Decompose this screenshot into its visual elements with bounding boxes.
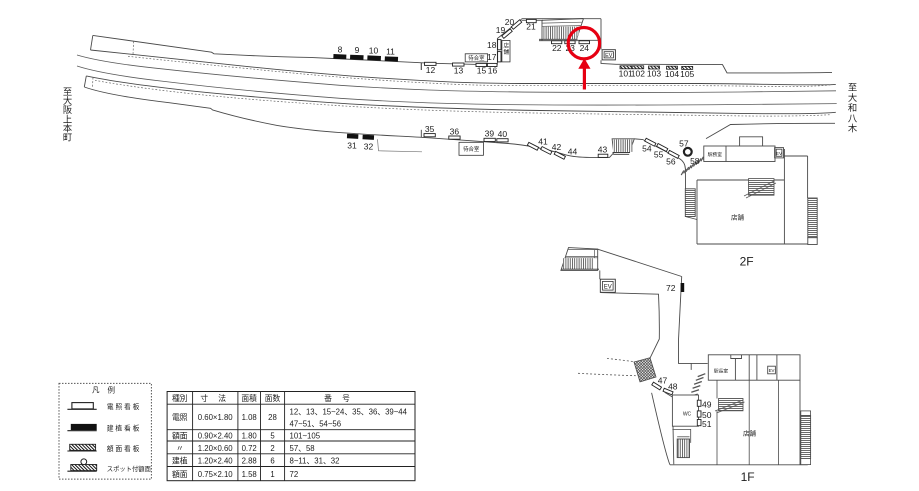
svg-text:額面看板: 額面看板 bbox=[107, 444, 141, 453]
svg-text:9: 9 bbox=[355, 45, 360, 55]
svg-text:17: 17 bbox=[487, 52, 497, 62]
svg-text:2F: 2F bbox=[740, 255, 754, 269]
svg-text:12: 12 bbox=[426, 65, 436, 75]
svg-text:58: 58 bbox=[690, 156, 700, 166]
svg-text:56: 56 bbox=[666, 157, 676, 167]
svg-text:EV: EV bbox=[604, 285, 612, 291]
svg-text:21: 21 bbox=[526, 22, 536, 32]
svg-text:駅務室: 駅務室 bbox=[708, 151, 723, 158]
svg-text:EV: EV bbox=[776, 151, 783, 156]
svg-text:39: 39 bbox=[485, 129, 495, 139]
svg-text:EV: EV bbox=[605, 53, 613, 59]
svg-text:16: 16 bbox=[488, 66, 498, 76]
svg-text:32: 32 bbox=[364, 142, 374, 152]
svg-text:72: 72 bbox=[666, 283, 676, 293]
svg-text:店舗: 店舗 bbox=[743, 429, 757, 438]
svg-text:104: 104 bbox=[665, 69, 679, 79]
svg-text:1F: 1F bbox=[741, 470, 755, 484]
svg-text:47: 47 bbox=[658, 375, 668, 385]
svg-text:44: 44 bbox=[568, 147, 578, 157]
svg-text:舗: 舗 bbox=[503, 48, 509, 56]
svg-text:40: 40 bbox=[498, 129, 508, 139]
svg-text:建植: 建植 bbox=[172, 456, 188, 466]
svg-text:55: 55 bbox=[654, 150, 664, 160]
svg-text:48: 48 bbox=[668, 381, 678, 391]
svg-text:EV: EV bbox=[769, 368, 775, 373]
svg-text:31: 31 bbox=[347, 141, 357, 151]
svg-text:57: 57 bbox=[679, 138, 689, 148]
svg-text:0.90×2.40: 0.90×2.40 bbox=[198, 431, 234, 440]
svg-text:49: 49 bbox=[702, 400, 712, 410]
svg-text:番 号: 番 号 bbox=[324, 393, 354, 403]
svg-text:5: 5 bbox=[270, 431, 275, 440]
svg-text:電照: 電照 bbox=[172, 413, 188, 422]
svg-text:41: 41 bbox=[538, 137, 548, 147]
svg-text:WC: WC bbox=[683, 412, 692, 418]
svg-text:6: 6 bbox=[270, 457, 274, 466]
svg-text:1.80: 1.80 bbox=[242, 431, 258, 440]
svg-text:店: 店 bbox=[503, 42, 509, 50]
svg-text:12、13、15~24、35、36、39~44: 12、13、15~24、35、36、39~44 bbox=[290, 408, 408, 417]
svg-text:1.08: 1.08 bbox=[242, 413, 257, 422]
svg-text:35: 35 bbox=[425, 124, 435, 134]
svg-text:1.20×2.40: 1.20×2.40 bbox=[198, 457, 234, 466]
svg-text:種別: 種別 bbox=[172, 393, 188, 403]
svg-text:額面: 額面 bbox=[172, 469, 188, 479]
svg-text:8~11、31、32: 8~11、31、32 bbox=[290, 457, 340, 466]
svg-text:0.72: 0.72 bbox=[242, 444, 257, 453]
svg-text:スポット付額面: スポット付額面 bbox=[107, 464, 151, 473]
svg-text:10: 10 bbox=[369, 46, 379, 56]
svg-text:102: 102 bbox=[631, 69, 645, 79]
svg-text:至大和八木: 至大和八木 bbox=[848, 83, 858, 134]
svg-text:1.20×0.60: 1.20×0.60 bbox=[198, 444, 234, 453]
svg-text:待合室: 待合室 bbox=[468, 54, 485, 62]
svg-text:105: 105 bbox=[680, 69, 694, 79]
svg-text:20: 20 bbox=[505, 17, 515, 27]
svg-text:電照看板: 電照看板 bbox=[107, 402, 141, 411]
svg-text:57、58: 57、58 bbox=[290, 444, 315, 453]
svg-text:24: 24 bbox=[580, 43, 590, 53]
svg-text:54: 54 bbox=[642, 144, 652, 154]
svg-text:51: 51 bbox=[702, 419, 712, 429]
svg-text:額面: 額面 bbox=[172, 430, 188, 440]
svg-text:0.60×1.80: 0.60×1.80 bbox=[198, 413, 234, 422]
svg-text:36: 36 bbox=[450, 126, 460, 136]
svg-text:47~51、54~56: 47~51、54~56 bbox=[290, 420, 342, 429]
svg-text:〃: 〃 bbox=[176, 444, 184, 453]
svg-text:28: 28 bbox=[268, 413, 277, 422]
svg-text:22: 22 bbox=[552, 43, 562, 53]
svg-text:11: 11 bbox=[386, 46, 395, 56]
svg-text:42: 42 bbox=[552, 142, 562, 152]
svg-text:8: 8 bbox=[338, 45, 343, 55]
svg-text:101~105: 101~105 bbox=[290, 431, 321, 440]
svg-text:1: 1 bbox=[270, 470, 274, 479]
svg-text:凡 例: 凡 例 bbox=[92, 385, 118, 395]
svg-text:2: 2 bbox=[270, 444, 274, 453]
svg-text:面積: 面積 bbox=[241, 393, 257, 403]
svg-text:13: 13 bbox=[454, 66, 464, 76]
svg-text:建植看板: 建植看板 bbox=[107, 424, 141, 433]
svg-text:面数: 面数 bbox=[265, 393, 281, 403]
svg-text:43: 43 bbox=[598, 145, 608, 155]
svg-text:店舗: 店舗 bbox=[731, 213, 745, 222]
svg-text:駅長室: 駅長室 bbox=[714, 368, 729, 375]
svg-text:待合室: 待合室 bbox=[463, 145, 480, 153]
svg-text:至大阪上本町: 至大阪上本町 bbox=[63, 87, 72, 143]
svg-text:72: 72 bbox=[290, 470, 299, 479]
svg-text:寸 法: 寸 法 bbox=[200, 393, 230, 403]
svg-text:18: 18 bbox=[487, 40, 497, 50]
svg-text:0.75×2.10: 0.75×2.10 bbox=[198, 470, 234, 479]
svg-text:2.88: 2.88 bbox=[242, 457, 257, 466]
svg-text:1.58: 1.58 bbox=[242, 470, 257, 479]
svg-text:15: 15 bbox=[477, 66, 487, 76]
svg-text:103: 103 bbox=[647, 69, 661, 79]
